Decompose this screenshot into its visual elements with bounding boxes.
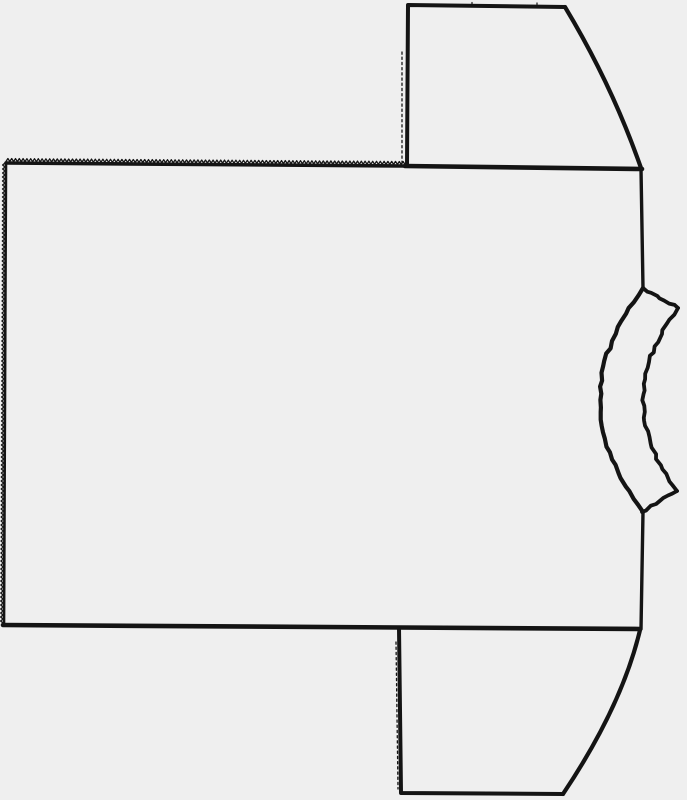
pattern-piece-sleeve-top	[402, 3, 641, 169]
pattern-piece-sleeve-bottom	[396, 628, 640, 794]
pattern-diagram	[0, 0, 687, 800]
pattern-line	[642, 308, 678, 491]
pattern-line	[407, 5, 565, 166]
pattern-line	[643, 288, 678, 308]
pattern-line	[641, 169, 643, 288]
pattern-line	[3, 625, 640, 629]
pattern-line	[600, 288, 643, 512]
pattern-svg	[0, 0, 687, 800]
pattern-line	[399, 628, 563, 794]
pattern-line	[565, 7, 641, 168]
pattern-line	[405, 166, 642, 169]
pattern-piece-neckband	[600, 288, 678, 512]
pattern-line	[641, 512, 643, 629]
pattern-line	[642, 491, 677, 512]
pattern-line	[563, 630, 640, 794]
pattern-line	[4, 163, 6, 625]
pattern-piece-body	[1, 159, 643, 630]
